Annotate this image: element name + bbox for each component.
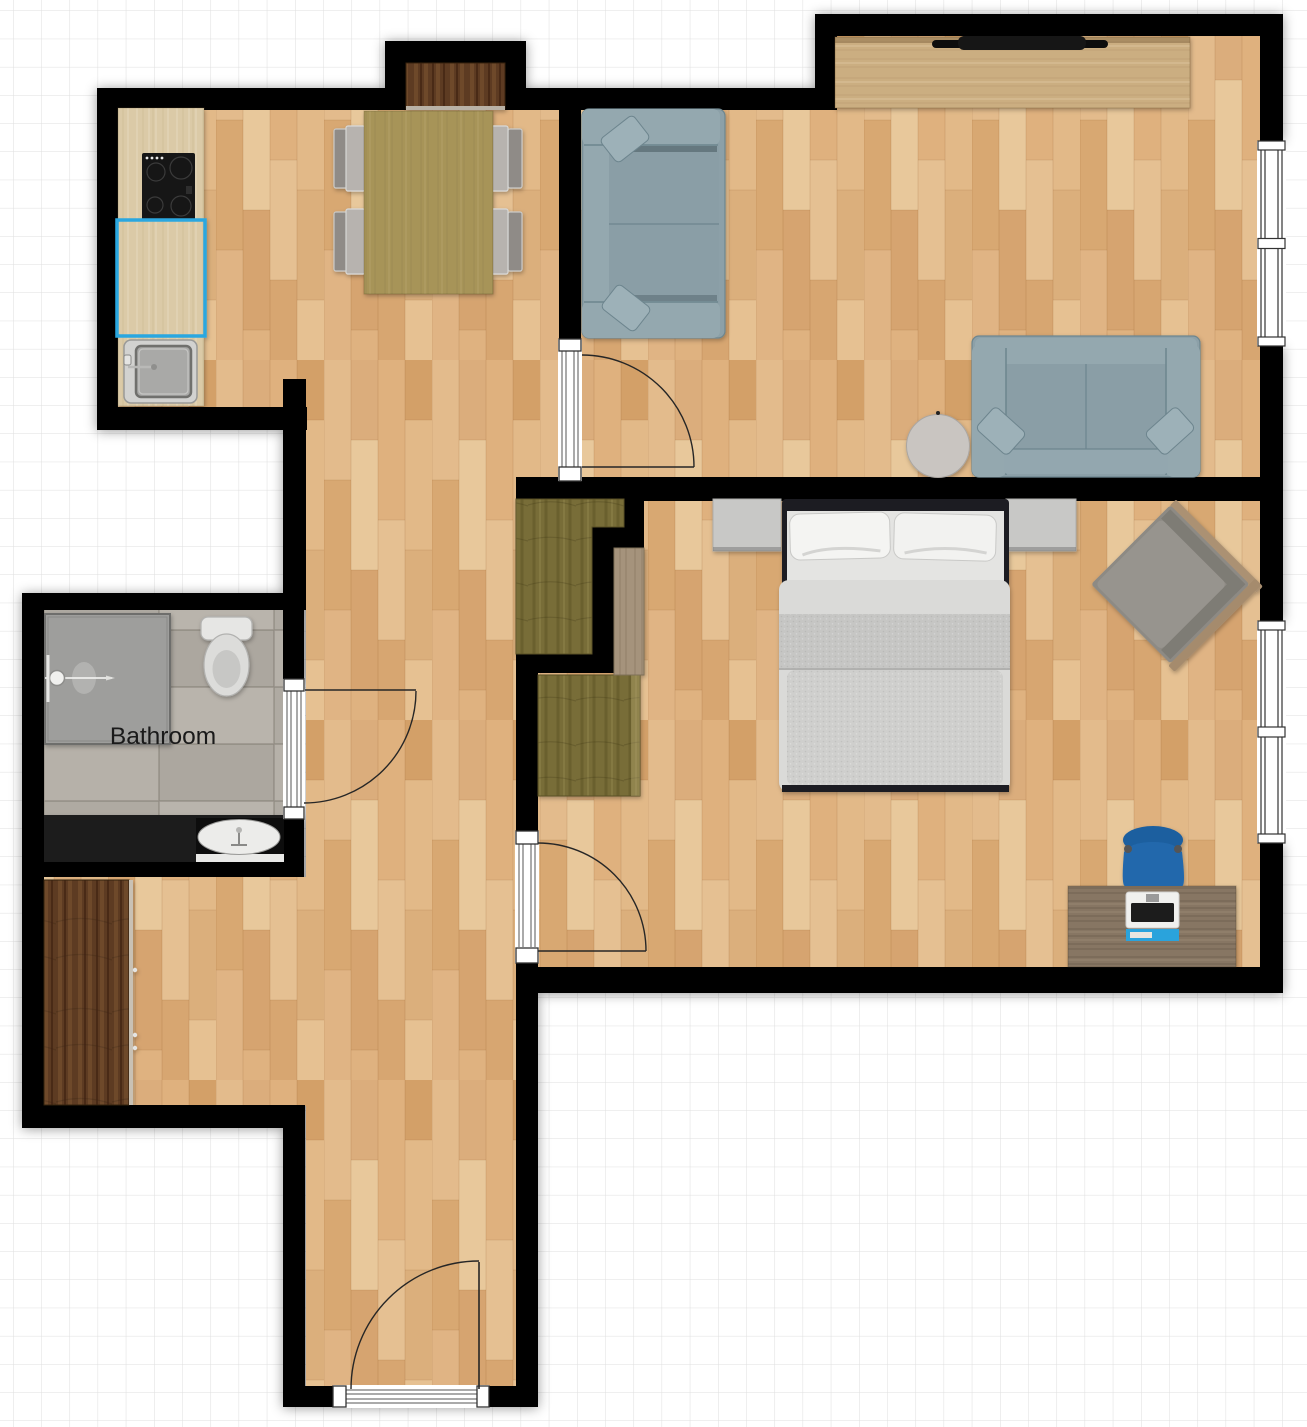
svg-text:Bathroom: Bathroom — [110, 723, 216, 750]
